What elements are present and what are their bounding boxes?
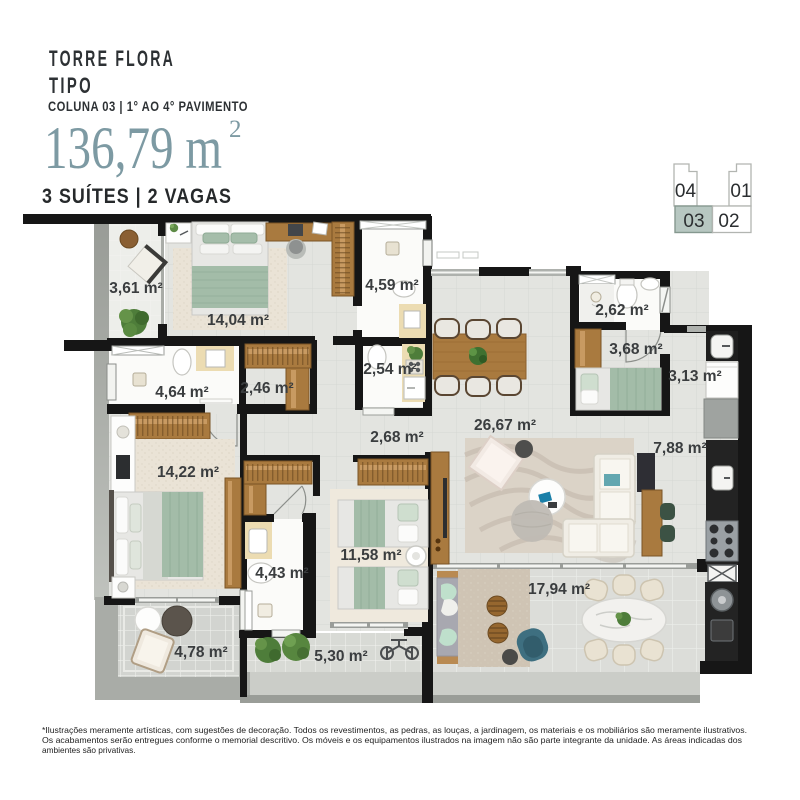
svg-text:COLUNA 03 | 1° AO 4° PAVIMENTO: COLUNA 03 | 1° AO 4° PAVIMENTO [48, 99, 248, 114]
svg-text:01: 01 [730, 181, 751, 202]
svg-text:*Ilustrações meramente artísti: *Ilustrações meramente artísticas, com s… [42, 725, 747, 735]
svg-text:7,88 m²: 7,88 m² [653, 440, 706, 457]
svg-text:02: 02 [718, 211, 739, 232]
svg-text:TORRE FLORA: TORRE FLORA [49, 46, 175, 71]
svg-text:5,30 m²: 5,30 m² [314, 648, 367, 665]
svg-text:17,94 m²: 17,94 m² [528, 581, 590, 598]
svg-text:136,79 m: 136,79 m [44, 115, 222, 181]
svg-text:ambientes são privativas.: ambientes são privativas. [42, 745, 136, 755]
svg-text:26,67 m²: 26,67 m² [474, 417, 536, 434]
svg-text:04: 04 [675, 181, 697, 202]
svg-text:4,59 m²: 4,59 m² [365, 277, 418, 294]
svg-text:14,04 m²: 14,04 m² [207, 312, 269, 329]
svg-text:3,68 m²: 3,68 m² [609, 341, 662, 358]
svg-text:4,78 m²: 4,78 m² [174, 644, 227, 661]
svg-text:2: 2 [229, 116, 242, 143]
svg-text:2,46 m²: 2,46 m² [240, 380, 293, 397]
svg-text:03: 03 [683, 211, 704, 232]
svg-text:3,61 m²: 3,61 m² [109, 280, 162, 297]
svg-text:3,13 m²: 3,13 m² [668, 368, 721, 385]
svg-text:3 SUÍTES | 2 VAGAS: 3 SUÍTES | 2 VAGAS [42, 185, 232, 208]
svg-text:4,43 m²: 4,43 m² [255, 565, 308, 582]
svg-text:Os acabamentos serão entregues: Os acabamentos serão entregues conforme … [42, 735, 742, 745]
svg-text:2,62 m²: 2,62 m² [595, 302, 648, 319]
svg-text:11,58 m²: 11,58 m² [340, 547, 401, 564]
svg-text:14,22 m²: 14,22 m² [157, 464, 219, 481]
svg-text:TIPO: TIPO [49, 73, 93, 98]
svg-text:2,68 m²: 2,68 m² [370, 429, 423, 446]
svg-text:2,54 m²: 2,54 m² [363, 361, 416, 378]
svg-text:4,64 m²: 4,64 m² [155, 384, 208, 401]
